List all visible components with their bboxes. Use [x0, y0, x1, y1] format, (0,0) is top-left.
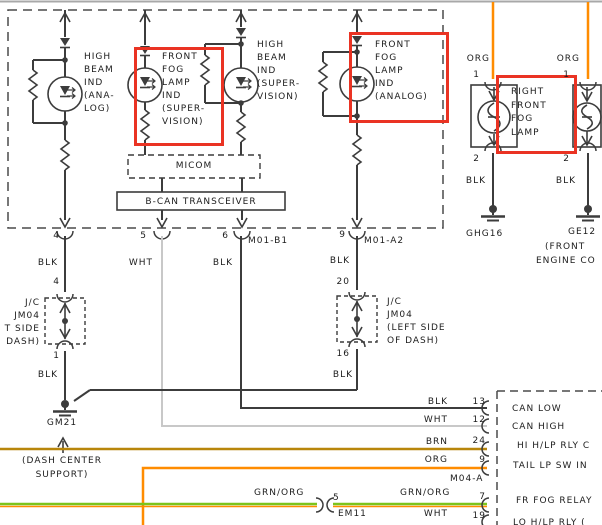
row-fr-fog-label: FR FOG RELAY: [516, 495, 593, 508]
wire-label-wht-pin5: WHT: [123, 257, 153, 270]
wire-label-org-right-lamp: ORG: [550, 53, 580, 66]
row-hi-hlp-wire: BRN: [400, 436, 448, 449]
ground-ge12-note-1: (FRONT: [545, 241, 585, 254]
ground-ge12: GE12: [568, 226, 596, 239]
label-right-front-fog-lamp: RIGHT FRONT FOG LAMP: [511, 86, 547, 140]
wire-blk-can-low: [241, 236, 487, 408]
connector-m01-b1: M01-B1: [248, 235, 288, 248]
jc-mid-pin-bot: 16: [322, 348, 350, 361]
lamp-left-pin1: 1: [462, 69, 480, 82]
lamp-right-pin2: 2: [552, 153, 570, 166]
label-bcan: B-CAN TRANSCEIVER: [117, 196, 285, 209]
jc-mid-label: J/C JM04 (LEFT SIDE OF DASH): [387, 296, 446, 348]
row-tail-lp-wire: ORG: [400, 454, 448, 467]
pin-9: 9: [322, 229, 346, 242]
ground-ge12-note-2: ENGINE CO: [536, 255, 596, 268]
wire-label-blk-left-lamp: BLK: [458, 175, 486, 188]
row-fr-fog-pin: 7: [462, 491, 486, 504]
row-fr-fog-wire: GRN/ORG: [400, 487, 448, 500]
pin-6: 6: [205, 230, 229, 243]
row-tail-lp-label: TAIL LP SW IN: [513, 460, 588, 473]
jc-mid-pin-top: 20: [322, 276, 350, 289]
label-front-fog-analog: FRONT FOG LAMP IND (ANALOG): [375, 39, 428, 104]
wire-label-blk-pin4: BLK: [30, 257, 58, 270]
row-lo-hlp-wire: WHT: [400, 508, 448, 521]
wire-label-grn-org-left: GRN/ORG: [254, 487, 304, 500]
ground-ghg16: GHG16: [466, 228, 503, 241]
pin-5: 5: [123, 230, 147, 243]
row-tail-lp-pin: 9: [462, 454, 486, 467]
row-can-high-wire: WHT: [400, 414, 448, 427]
wire-label-blk-jm04: BLK: [325, 369, 353, 382]
label-high-beam-analog: HIGH BEAM IND (ANA- LOG): [84, 51, 115, 116]
wire-label-org-left-lamp: ORG: [460, 53, 490, 66]
label-front-fog-supervision: FRONT FOG LAMP IND (SUPER- VISION): [162, 51, 205, 129]
row-can-low-label: CAN LOW: [512, 403, 562, 416]
wire-label-blk-right-lamp: BLK: [548, 175, 576, 188]
row-hi-hlp-pin: 24: [462, 435, 486, 448]
ground-gm21: GM21: [37, 417, 87, 430]
label-micom: MICOM: [128, 160, 260, 173]
row-lo-hlp-label: LO H/LP RLY (: [513, 517, 586, 525]
left-edge-fog-lamp: [573, 2, 601, 221]
row-can-low-pin: 13: [462, 396, 486, 409]
wire-label-blk-gm21: BLK: [30, 369, 58, 382]
pin-4: 4: [36, 230, 60, 243]
connector-m01-a2: M01-A2: [364, 235, 404, 248]
wiring-diagram: HIGH BEAM IND (ANA- LOG) FRONT FOG LAMP …: [0, 0, 602, 525]
connector-m04a-name: M04-A: [450, 473, 483, 486]
em11-pin: 5: [333, 492, 340, 505]
lamp-left-pin2: 2: [462, 153, 480, 166]
wire-label-blk-pin9: BLK: [322, 255, 350, 268]
row-can-high-label: CAN HIGH: [512, 421, 565, 434]
row-lo-hlp-pin: 19: [462, 510, 486, 523]
ground-gm21-note: (DASH CENTER SUPPORT): [8, 454, 116, 482]
row-can-low-wire: BLK: [400, 396, 448, 409]
label-high-beam-supervision: HIGH BEAM IND (SUPER- VISION): [257, 39, 300, 104]
wire-label-blk-pin6: BLK: [205, 257, 233, 270]
row-hi-hlp-label: HI H/LP RLY C: [517, 440, 590, 453]
lamp-right-pin1: 1: [552, 69, 570, 82]
jc-left-pin-top: 4: [36, 276, 60, 289]
branch-high-beam-analog: [33, 10, 65, 220]
jc-left-label: J/C JM04 T SIDE DASH): [0, 297, 40, 349]
jc-left-pin-bot: 1: [36, 350, 60, 363]
branch-front-fog-analog: [323, 10, 357, 220]
connector-em11-name: EM11: [338, 508, 367, 521]
row-can-high-pin: 12: [462, 414, 486, 427]
